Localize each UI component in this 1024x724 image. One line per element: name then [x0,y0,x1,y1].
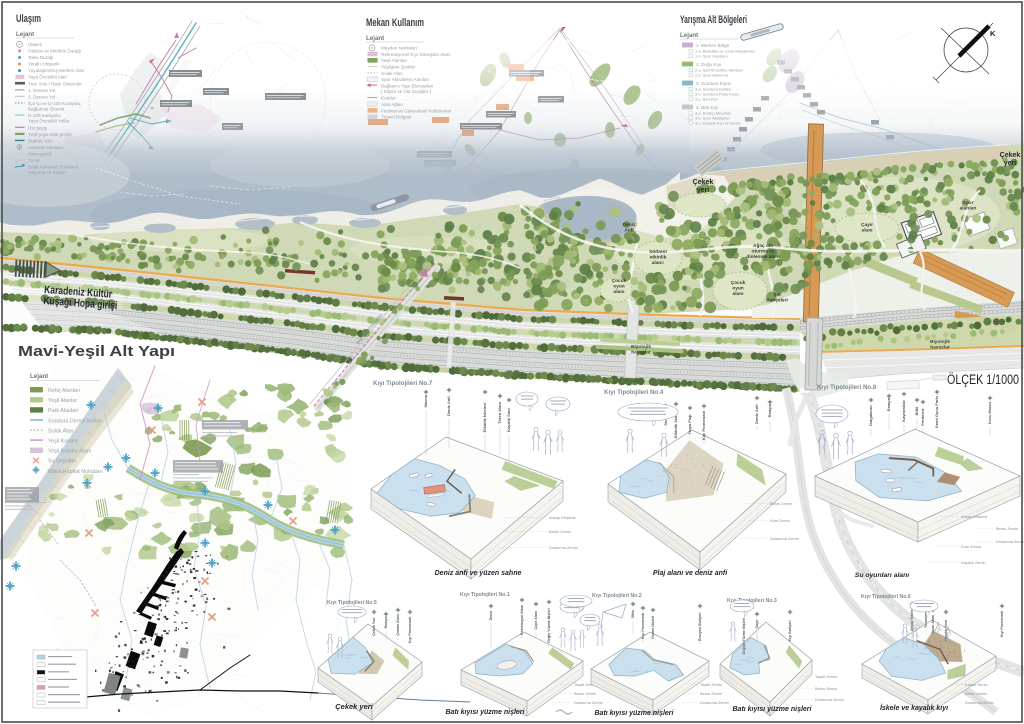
svg-text:Beton Zemin: Beton Zemin [549,529,571,534]
svg-text:Sulak Alan: Sulak Alan [381,71,403,76]
svg-text:Üst geçiş: Üst geçiş [28,124,48,130]
svg-text:K: K [990,29,996,38]
svg-text:oyun: oyun [613,285,625,290]
svg-text:Yüzme Nişleri: Yüzme Nişleri [651,616,655,640]
svg-text:Yaya geçidi: Yaya geçidi [28,152,51,157]
svg-text:Çayır: Çayır [861,222,873,228]
svg-text:Hopa Plajı: Hopa Plajı [687,414,692,433]
svg-text:Perdeleri: Perdeleri [920,409,925,426]
svg-text:Park Alanları: Park Alanları [48,408,79,414]
svg-text:Beton Zemin: Beton Zemin [574,691,596,696]
svg-text:alanı: alanı [733,291,744,297]
svg-text:Yeşil Koridor Alanı: Yeşil Koridor Alanı [48,449,92,455]
svg-text:2. Derece Yol: 2. Derece Yol [28,94,55,99]
svg-text:oyun: oyun [732,287,744,292]
svg-text:Kayalık Sınır: Kayalık Sınır [944,619,948,641]
svg-text:( Köprü ve Üst Geçişler ): ( Köprü ve Üst Geçişler ) [381,88,432,94]
svg-text:3. Sundura Kıyısı: 3. Sundura Kıyısı [696,81,731,86]
svg-text:havuzlar: havuzlar [631,350,651,356]
svg-text:Deniz anfi ve yüzen sahne: Deniz anfi ve yüzen sahne [435,570,522,577]
svg-text:Doldurma Zemin: Doldurma Zemin [965,700,994,705]
svg-text:4.c. Kayalık Kıyı ve İskele: 4.c. Kayalık Kıyı ve İskele [695,120,741,125]
svg-text:İlçe içi ve D-100 Karayolu,: İlçe içi ve D-100 Karayolu, [28,100,81,106]
svg-text:4. Batı Kıyı: 4. Batı Kıyı [696,105,718,110]
svg-text:Sörbest: Sörbest [649,249,667,255]
svg-text:Beton Zemin: Beton Zemin [815,686,837,691]
svg-text:Anfi: Anfi [624,228,633,234]
svg-text:Lejant: Lejant [680,32,698,39]
svg-text:Biyolojik: Biyolojik [631,344,651,350]
svg-text:Tren Yolu / Raylı Sistemler: Tren Yolu / Raylı Sistemler [28,81,82,86]
svg-text:Batı kıyısı yüzme nişleri: Batı kıyısı yüzme nişleri [595,710,675,717]
svg-text:Çekme Alanı: Çekme Alanı [396,614,400,635]
svg-text:Kıyı Tipolojileri No.2: Kıyı Tipolojileri No.2 [592,593,642,599]
svg-text:Çekek yeri: Çekek yeri [335,702,373,711]
svg-text:Ahşap Döşeme: Ahşap Döşeme [549,515,576,520]
svg-text:Ulaşım: Ulaşım [28,42,42,47]
svg-text:Otobüs ve Minibüs Durağı: Otobüs ve Minibüs Durağı [28,49,81,54]
svg-text:Kıyı Promenadı: Kıyı Promenadı [701,411,706,440]
svg-text:Kıyı Tipolojileri No.1: Kıyı Tipolojileri No.1 [460,592,510,598]
svg-text:Deniz Anfi: Deniz Anfi [446,396,451,415]
svg-text:Erozyon Bariyeri: Erozyon Bariyeri [698,612,702,641]
svg-text:Şet: Şet [773,292,781,298]
svg-text:Tören Alanı: Tören Alanı [497,402,502,424]
svg-text:Meydan Noktaları: Meydan Noktaları [381,46,417,51]
svg-text:Beton Zemin: Beton Zemin [965,691,987,696]
svg-text:dinlenme alanı: dinlenme alanı [746,254,779,260]
svg-text:Çocuk: Çocuk [612,278,627,284]
svg-text:D-100 Karayolu,: D-100 Karayolu, [28,113,61,118]
svg-text:Lejant: Lejant [366,35,384,42]
svg-text:Kıyı Tipolojileri No.5: Kıyı Tipolojileri No.5 [327,600,377,606]
svg-text:Kıyı Promenadı: Kıyı Promenadı [408,617,412,643]
svg-text:Doldurma Zemin: Doldurma Zemin [549,545,578,550]
svg-text:Spor Aktiviteleri Alanları: Spor Aktiviteleri Alanları [381,77,429,82]
svg-text:Dalgakıran: Dalgakıran [868,405,873,426]
svg-text:Beton Zemin: Beton Zemin [700,691,722,696]
svg-text:Kum Zemin: Kum Zemin [770,518,790,523]
svg-text:Doldurma Zemin: Doldurma Zemin [700,700,729,705]
svg-text:Alan Ağları: Alan Ağları [381,102,403,107]
svg-text:Çocuk: Çocuk [731,280,746,286]
svg-text:Kıyı Tipolojileri No.7: Kıyı Tipolojileri No.7 [373,380,433,387]
svg-text:İskele ve kayalık kıyı: İskele ve kayalık kıyı [880,704,948,712]
svg-text:Yeşil Alanlar: Yeşil Alanlar [48,398,77,404]
svg-text:Batı kıyısı yüzme nişleri: Batı kıyısı yüzme nişleri [446,709,526,716]
svg-text:Çekek: Çekek [1000,152,1021,159]
svg-text:2.b. Spor Alanında: 2.b. Spor Alanında [695,73,729,78]
svg-text:Kayalık Sınır: Kayalık Sınır [506,408,511,432]
svg-text:Yaya Öncelikli Yollar: Yaya Öncelikli Yollar [28,118,70,124]
svg-text:Yeraltı Otoparkı: Yeraltı Otoparkı [28,62,60,67]
svg-text:Yeşil Koridor: Yeşil Koridor [48,439,78,445]
svg-text:Taşınma ve Erişim: Taşınma ve Erişim [28,170,66,175]
svg-text:Kritik Kamusal Odakların: Kritik Kamusal Odakların [28,165,79,170]
svg-text:Sundura Deresi Kolları: Sundura Deresi Kolları [48,418,102,424]
svg-text:Çayır Alanı: Çayır Alanı [534,611,538,630]
svg-text:3.c. Şed Kıyı: 3.c. Şed Kıyı [695,96,718,101]
svg-text:Tünel: Tünel [28,158,40,163]
svg-text:Bağlayıcı Yapı Elemanları: Bağlayıcı Yapı Elemanları [381,84,433,89]
svg-text:Çayır: Çayır [755,619,759,629]
svg-text:Su Depoları: Su Depoları [48,459,76,465]
svg-text:Deniz: Deniz [623,222,636,228]
svg-text:Deniz Anfi: Deniz Anfi [754,404,759,423]
svg-text:Koridor: Koridor [381,96,396,101]
svg-text:2. Doğu Kıyı: 2. Doğu Kıyı [696,62,721,67]
svg-text:Ahşap İskele: Ahşap İskele [910,610,914,632]
svg-text:Kuru Havuz: Kuru Havuz [987,402,992,424]
svg-text:Ticaret Bölgesi: Ticaret Bölgesi [381,115,411,120]
svg-text:Kayalık Zemin: Kayalık Zemin [961,560,986,565]
svg-text:Doldurma Zemin: Doldurma Zemin [574,700,603,705]
svg-text:Ahşap Döşeme: Ahşap Döşeme [961,514,988,519]
svg-text:Yeşil Alanları: Yeşil Alanları [381,58,407,63]
svg-text:Etkinlik İskelesi: Etkinlik İskelesi [482,403,487,433]
svg-text:Plaj alanı ve deniz anfi: Plaj alanı ve deniz anfi [653,570,728,577]
svg-text:Yarışma Alt Bölgeleri: Yarışma Alt Bölgeleri [680,14,747,26]
svg-text:alanları: alanları [960,206,977,212]
svg-text:Yayalaştırılmış Merkez Alan: Yayalaştırılmış Merkez Alan [28,68,85,73]
svg-text:Rampa: Rampa [384,615,388,628]
svg-text:Bitki: Bitki [914,407,919,416]
svg-text:Yaya Öncelikli Alan: Yaya Öncelikli Alan [28,74,67,80]
svg-text:Asansör noktaları: Asansör noktaları [28,145,64,150]
svg-text:Sulak Alan: Sulak Alan [48,428,73,434]
svg-text:Spor: Spor [963,200,974,206]
svg-text:Doldurma Zemin: Doldurma Zemin [770,536,799,541]
svg-text:Siklo: Siklo [631,609,635,618]
svg-text:Değiş Yüzme Nişleri: Değiş Yüzme Nişleri [547,608,551,642]
svg-text:Refüj Alanları: Refüj Alanları [48,388,80,394]
svg-text:Taşalt Zemin: Taşalt Zemin [700,682,722,687]
svg-text:Çekek: Çekek [693,179,714,186]
svg-text:Taşalt Zemin: Taşalt Zemin [815,674,837,679]
svg-text:Rekreasyon Alanı: Rekreasyon Alanı [520,605,524,635]
svg-text:Su oyunları alanı: Su oyunları alanı [855,572,910,579]
svg-text:Kum Zemin: Kum Zemin [961,544,981,549]
svg-text:etkinlik: etkinlik [650,255,667,261]
svg-text:Mavi-Yeşil Alt Yapı: Mavi-Yeşil Alt Yapı [18,344,175,360]
svg-text:Oyun Alanı: Oyun Alanı [931,615,935,634]
svg-text:Beton Zemin: Beton Zemin [770,501,792,506]
svg-text:Gemi Oyun Parkı: Gemi Oyun Parkı [934,396,939,428]
svg-text:havuzlar: havuzlar [930,345,950,351]
svg-text:Mekan Kullanım: Mekan Kullanım [366,17,424,29]
svg-text:Mavna: Mavna [423,394,428,407]
svg-text:alanı: alanı [614,289,625,295]
svg-text:Beton Zemin: Beton Zemin [996,526,1018,531]
svg-text:Kayalı Zemin: Kayalı Zemin [965,682,988,687]
svg-text:alanı: alanı [862,228,873,234]
svg-text:oturma ve: oturma ve [752,249,775,255]
svg-text:Rampa: Rampa [767,403,772,417]
svg-text:1.b. Spor Meydanı: 1.b. Spor Meydanı [695,54,728,59]
svg-text:Bisiklet Yolu: Bisiklet Yolu [28,139,53,144]
svg-text:Ağaç altı: Ağaç altı [753,243,773,249]
svg-text:Doldurma Zemin: Doldurma Zemin [996,539,1024,544]
svg-text:1. Derece Yol: 1. Derece Yol [28,88,55,93]
svg-text:Doldurma Zemin: Doldurma Zemin [815,697,844,702]
svg-text:1. Merkez Bölge: 1. Merkez Bölge [696,43,730,48]
svg-text:Lejant: Lejant [16,31,34,38]
svg-text:Ulaşım: Ulaşım [16,13,41,25]
svg-text:Kaydıraklar: Kaydıraklar [901,400,906,422]
svg-text:Festival ve Geleneksel Kullanı: Festival ve Geleneksel Kullanımlar [381,108,452,113]
svg-text:Mikro Habitat Noktaları: Mikro Habitat Noktaları [48,469,103,475]
svg-text:Kıyı Tipolojileri No.8: Kıyı Tipolojileri No.8 [817,384,877,391]
svg-text:Rekreasyonel Kıyı Dönüşüm Alan: Rekreasyonel Kıyı Dönüşüm Alanı [381,52,451,57]
svg-text:Batı kıyısı yüzme nişleri: Batı kıyısı yüzme nişleri [733,706,813,713]
svg-text:yeri: yeri [697,187,710,194]
svg-text:Kıyı Promenadı: Kıyı Promenadı [1000,611,1004,637]
svg-text:ÖLÇEK 1/1000: ÖLÇEK 1/1000 [947,372,1019,387]
svg-text:Taksi Durağı: Taksi Durağı [28,55,54,60]
svg-text:Kıyı Promenadı: Kıyı Promenadı [641,613,645,639]
svg-text:Bağlantısı Önerisi: Bağlantısı Önerisi [28,105,64,111]
svg-text:alanı:: alanı: [652,260,665,266]
svg-text:Yeşilgöre Şeritler: Yeşilgöre Şeritler [381,65,416,70]
svg-text:Lejant: Lejant [30,373,48,380]
svg-text:Rampa: Rampa [886,397,891,411]
svg-text:Kıyı Bariyeri: Kıyı Bariyeri [788,620,792,641]
svg-text:Bahçeleri: Bahçeleri [766,298,788,304]
svg-text:Yeşil yaya üstü geçişi: Yeşil yaya üstü geçişi [28,132,72,137]
svg-text:Kıyı Tipolojileri No.6: Kıyı Tipolojileri No.6 [861,594,911,600]
svg-text:Deniz: Deniz [489,611,493,621]
svg-text:yeri: yeri [1004,160,1017,167]
svg-text:Çekek Yeri: Çekek Yeri [372,618,376,636]
svg-text:Kıyı Tipolojileri No.4: Kıyı Tipolojileri No.4 [604,389,664,396]
svg-text:Biyolojik: Biyolojik [930,339,950,345]
